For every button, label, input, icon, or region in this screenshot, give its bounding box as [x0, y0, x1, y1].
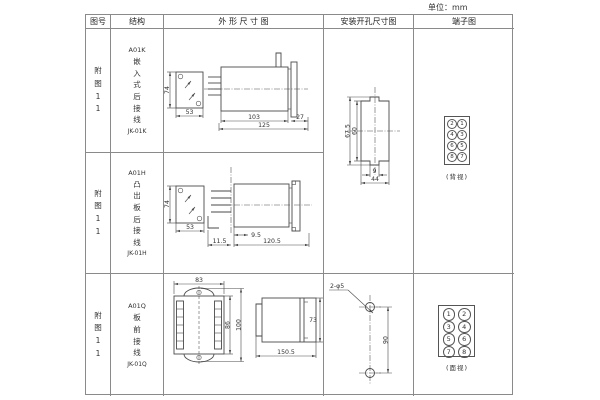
terminal-view-label: (背视) [427, 171, 487, 181]
terminal-view-label: (面视) [427, 362, 487, 372]
terminal-pin: 2 [458, 308, 471, 321]
terminal-pin: 2 [447, 119, 457, 129]
terminal-pin: 7 [443, 346, 456, 359]
header-structure: 结构 [111, 15, 164, 29]
terminal-pin: 4 [447, 130, 457, 140]
outline-cell-row1: 74 53 103 27 125 [164, 29, 324, 153]
outline-drawing-a01h: 74 53 9.5 120.5 [164, 153, 324, 274]
terminal-cell-rows12: 2 1 4 3 6 5 8 7 (背视) [414, 29, 514, 274]
outline-drawing-a01q: 83 86 100 [164, 274, 324, 396]
header-outline: 外 形 尺 寸 图 [164, 15, 324, 29]
svg-text:11.5: 11.5 [213, 238, 227, 245]
code-text: JK-01K [128, 128, 147, 135]
terminal-pin: 4 [458, 321, 471, 334]
svg-text:27: 27 [296, 114, 304, 121]
svg-text:86: 86 [225, 321, 232, 329]
panel-cutout-drawing: 67.5 60 9 44 [324, 29, 414, 274]
svg-text:53: 53 [186, 109, 194, 116]
structure-cell-row2: A01H 凸出板后接线 JK-01H [111, 153, 164, 274]
svg-text:100: 100 [236, 319, 243, 331]
structure-cell-row3: A01Q 板前接线 JK-01Q [111, 274, 164, 396]
terminal-pin: 3 [443, 321, 456, 334]
header-figure: 图号 [86, 15, 111, 29]
outline-cell-row2: 74 53 9.5 120.5 [164, 153, 324, 274]
unit-note: 单位：mm [428, 2, 468, 13]
structure-text: 板前接线 [133, 312, 141, 359]
terminal-pin: 3 [457, 130, 467, 140]
figure-text: 附图11 [93, 310, 102, 361]
terminal-pin: 5 [457, 141, 467, 151]
svg-text:150.5: 150.5 [277, 349, 295, 356]
terminal-pin: 1 [457, 119, 467, 129]
model-text: A01H [128, 169, 146, 177]
figure-text: 附图11 [93, 65, 102, 116]
outline-drawing-a01k: 74 53 103 27 125 [164, 29, 324, 153]
svg-text:103: 103 [248, 114, 260, 121]
header-terminal: 端子图 [414, 15, 514, 29]
svg-text:9.5: 9.5 [251, 232, 261, 239]
svg-text:67.5: 67.5 [345, 124, 352, 138]
terminal-pin: 5 [443, 333, 456, 346]
model-text: A01Q [128, 302, 146, 310]
svg-text:9: 9 [373, 168, 377, 175]
structure-cell-row1: A01K 嵌入式后接线 JK-01K [111, 29, 164, 153]
svg-text:44: 44 [371, 176, 379, 183]
terminal-diagram-front: 1 2 3 4 5 6 7 8 [438, 305, 475, 357]
svg-text:125: 125 [258, 122, 270, 129]
terminal-pin: 6 [447, 141, 457, 151]
svg-text:53: 53 [186, 224, 194, 231]
svg-text:83: 83 [195, 277, 203, 284]
terminal-cell-row3: 1 2 3 4 5 6 7 8 (面视) [414, 274, 514, 396]
figure-cell-row2: 附图11 [86, 153, 111, 274]
code-text: JK-01H [127, 250, 146, 257]
terminal-pin: 8 [458, 346, 471, 359]
terminal-pin: 1 [443, 308, 456, 321]
terminal-diagram-back: 2 1 4 3 6 5 8 7 [444, 116, 470, 165]
drawing-page: 单位：mm 图号 结构 外 形 尺 寸 图 安装开孔尺寸图 端子图 附图11 A… [0, 0, 600, 400]
header-mounting: 安装开孔尺寸图 [324, 15, 414, 29]
svg-text:73: 73 [309, 317, 317, 324]
terminal-pin: 7 [457, 152, 467, 162]
svg-text:90: 90 [383, 336, 390, 344]
outline-cell-row3: 83 86 100 [164, 274, 324, 396]
mounting-cell-rows12: 67.5 60 9 44 [324, 29, 414, 274]
header-terminal-label: 端子图 [452, 16, 476, 27]
svg-text:60: 60 [352, 127, 359, 135]
header-mounting-label: 安装开孔尺寸图 [341, 16, 397, 27]
figure-cell-row3: 附图11 [86, 274, 111, 396]
figure-text: 附图11 [93, 188, 102, 239]
header-outline-label: 外 形 尺 寸 图 [218, 16, 268, 27]
structure-text: 嵌入式后接线 [133, 56, 141, 126]
mounting-holes-drawing: 2-φ5 90 [324, 274, 414, 396]
svg-text:74: 74 [164, 86, 171, 94]
svg-text:2-φ5: 2-φ5 [330, 283, 344, 290]
terminal-pin: 8 [447, 152, 457, 162]
header-figure-label: 图号 [90, 16, 106, 27]
figure-cell-row1: 附图11 [86, 29, 111, 153]
header-structure-label: 结构 [129, 16, 145, 27]
model-text: A01K [129, 46, 146, 54]
svg-text:74: 74 [164, 200, 171, 208]
dimension-table: 图号 结构 外 形 尺 寸 图 安装开孔尺寸图 端子图 附图11 A01K 嵌入… [85, 14, 513, 395]
mounting-cell-row3: 2-φ5 90 [324, 274, 414, 396]
svg-text:120.5: 120.5 [263, 238, 281, 245]
structure-text: 凸出板后接线 [133, 179, 141, 249]
code-text: JK-01Q [127, 361, 147, 368]
terminal-pin: 6 [458, 333, 471, 346]
